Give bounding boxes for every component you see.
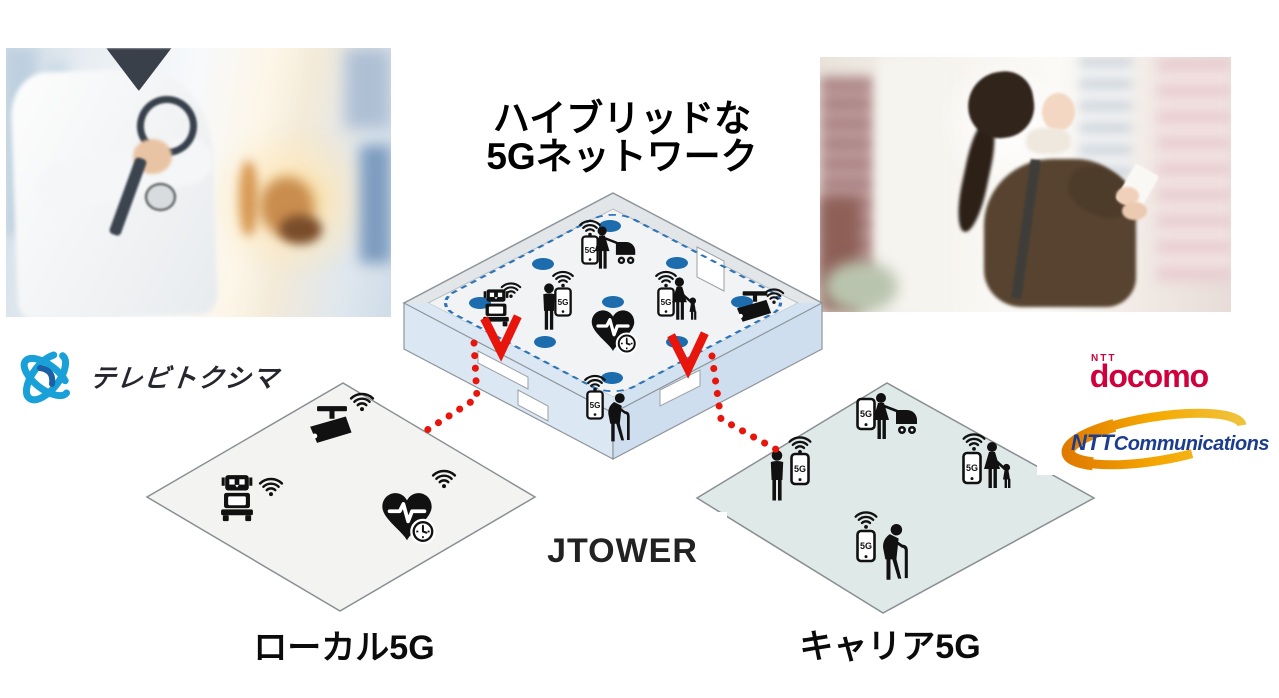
antenna-dot bbox=[602, 296, 624, 308]
5g-phone-icon bbox=[555, 289, 570, 316]
nttcom-name: Communications bbox=[1114, 433, 1269, 455]
5g-phone-icon bbox=[658, 289, 673, 316]
local5g-area bbox=[147, 383, 535, 611]
antenna-dot bbox=[601, 372, 623, 384]
docomo-ntt-prefix: NTT bbox=[1091, 353, 1116, 364]
5g-phone-icon bbox=[858, 399, 875, 429]
5g-phone-icon bbox=[858, 531, 875, 561]
antenna-dot bbox=[532, 258, 554, 270]
5g-phone-icon bbox=[587, 392, 602, 419]
carrier5g-zone bbox=[697, 383, 1094, 613]
docomo-logo: NTT docomo bbox=[1055, 352, 1243, 396]
infographic-canvas: ハイブリッドな 5Gネットワーク 5G bbox=[0, 0, 1279, 698]
ntt-communications-logo: NTTCommunications bbox=[1037, 406, 1279, 475]
tv-tokushima-name: テレビトクシマ bbox=[88, 358, 281, 395]
hybrid-floor bbox=[404, 193, 822, 459]
tv-tokushima-swirl-icon bbox=[10, 338, 82, 416]
carrier5g-label: キャリア5G bbox=[687, 617, 1093, 677]
tv-tokushima-logo: テレビトクシマ bbox=[10, 338, 310, 416]
local5g-zone bbox=[147, 383, 535, 611]
local5g-label: ローカル5G bbox=[143, 618, 545, 678]
robot-icon bbox=[221, 475, 253, 521]
carrier5g-area bbox=[697, 383, 1094, 613]
5g-phone-icon bbox=[792, 454, 809, 484]
jtower-label: JTOWER bbox=[518, 512, 727, 590]
ntt-communications-wordmark: NTTCommunications bbox=[1071, 430, 1269, 456]
antenna-dot bbox=[666, 257, 688, 269]
antenna-dot bbox=[534, 336, 556, 348]
5g-phone-icon bbox=[964, 453, 981, 483]
nttcom-ntt-prefix: NTT bbox=[1071, 430, 1114, 455]
